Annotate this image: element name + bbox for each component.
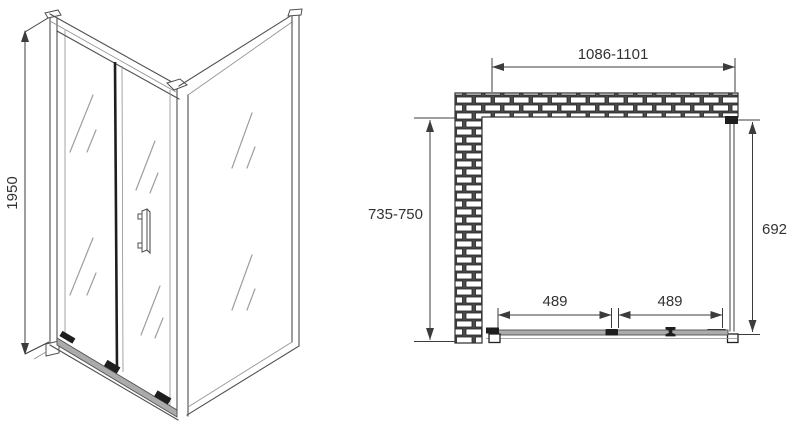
shine-line bbox=[87, 273, 96, 295]
glass-shine-marks bbox=[70, 95, 255, 338]
arrow-left-icon bbox=[619, 311, 631, 319]
wall-bracket bbox=[725, 116, 738, 124]
brick-wall bbox=[455, 93, 738, 343]
center-roller bbox=[606, 329, 619, 336]
panel-bottom-line bbox=[188, 342, 292, 407]
door-handle bbox=[138, 209, 150, 253]
technical-drawing-canvas: 1950 bbox=[0, 0, 800, 431]
plan-width-label: 1086-1101 bbox=[578, 46, 649, 63]
plan-depth-label: 735-750 bbox=[368, 206, 423, 223]
plan-side-label: 692 bbox=[762, 221, 787, 238]
plan-door-track bbox=[486, 327, 737, 343]
post-top-cap bbox=[45, 10, 61, 18]
front-bottom-rail bbox=[50, 331, 178, 420]
technical-drawing-page: 1950 bbox=[0, 0, 800, 431]
side-panel bbox=[179, 9, 302, 415]
front-height-dimension: 1950 bbox=[4, 18, 49, 355]
front-right-post bbox=[167, 79, 188, 416]
handle-bar bbox=[142, 209, 147, 252]
arrow-left-icon bbox=[492, 63, 504, 71]
arrow-up-icon bbox=[426, 120, 434, 132]
plan-door-left-label: 489 bbox=[542, 293, 567, 310]
frame-line bbox=[57, 31, 179, 99]
plan-depth-dimension: 735-750 bbox=[368, 118, 456, 342]
shine-line bbox=[247, 147, 255, 168]
panel-top-line bbox=[179, 15, 292, 86]
shine-line bbox=[247, 289, 255, 310]
shine-line bbox=[136, 141, 155, 190]
corner-profile bbox=[489, 334, 500, 343]
plan-width-dimension: 1086-1101 bbox=[492, 46, 735, 92]
shine-line bbox=[87, 130, 96, 152]
handle-mount bbox=[138, 214, 142, 219]
shine-line bbox=[232, 255, 252, 310]
front-left-post bbox=[34, 10, 65, 359]
frame-line bbox=[50, 21, 176, 92]
shine-line bbox=[70, 95, 93, 152]
handle-mount bbox=[138, 243, 142, 248]
frame-line bbox=[50, 345, 178, 420]
arrow-down-icon bbox=[426, 328, 434, 340]
extension-line bbox=[25, 18, 48, 32]
door-glass-edge bbox=[122, 66, 123, 372]
arrow-left-icon bbox=[498, 311, 510, 319]
plan-door-right-label: 489 bbox=[657, 293, 682, 310]
shine-line bbox=[70, 238, 93, 295]
front-view-drawing: 1950 bbox=[4, 9, 302, 420]
plan-view-drawing: 1086-1101 735-750 692 bbox=[368, 46, 787, 343]
plan-side-dimension: 692 bbox=[738, 120, 787, 335]
floor-line bbox=[34, 352, 46, 359]
panel-top-line bbox=[188, 22, 292, 95]
arrow-up-icon bbox=[749, 122, 757, 134]
arrow-down-icon bbox=[749, 320, 757, 332]
arrow-right-icon bbox=[711, 311, 723, 319]
panel-bottom-line bbox=[187, 346, 299, 415]
shine-line bbox=[155, 318, 163, 338]
front-height-label: 1950 bbox=[4, 176, 21, 209]
door-divider-profile bbox=[115, 62, 117, 369]
shine-line bbox=[150, 173, 158, 193]
arrow-right-icon bbox=[723, 63, 735, 71]
arrow-down-icon bbox=[21, 343, 29, 355]
plan-door-dimensions: 489 489 bbox=[498, 293, 723, 328]
wall-bracket bbox=[486, 328, 499, 334]
far-post-cap bbox=[288, 9, 302, 16]
shine-line bbox=[141, 286, 160, 335]
shine-line bbox=[232, 113, 252, 168]
arrow-right-icon bbox=[600, 311, 612, 319]
